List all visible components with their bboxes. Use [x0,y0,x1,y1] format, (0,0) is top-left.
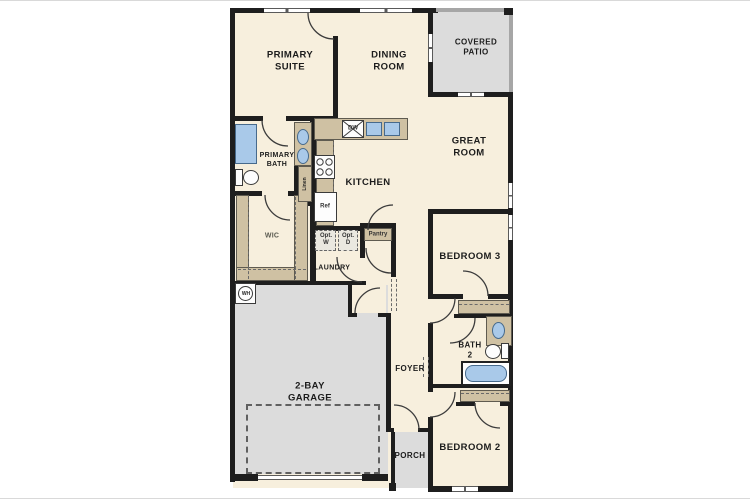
wall-garage-bottom-a [230,474,258,481]
stove-fixture [314,155,335,179]
wall-garage-right [386,313,391,432]
dishwasher-label: DW [348,126,358,133]
garage-parking-dash [246,404,380,474]
bedroom3-closet-dash [459,304,509,305]
window-bedroom3 [508,215,513,240]
garage-door [258,475,362,480]
garage-vestibule-floor [352,285,386,313]
foyer-opening-dash-1 [391,279,397,311]
patio-slider-door [428,34,433,62]
patio-corner-post [504,8,513,15]
patio-wall-right [509,8,513,97]
primary-bath-label: PRIMARY BATH [260,151,295,169]
laundry-label: LAUNDRY [314,263,351,272]
toilet-tank-bath2 [501,343,509,359]
wall-vestibule-left [348,285,352,313]
window-great-room [508,183,513,208]
kitchen-sink-1 [366,122,382,136]
opt-washer-label: Opt. W [320,233,332,247]
bedroom3-closet-shelf [458,300,510,314]
wall-bedroom2-bottom-b [478,486,513,492]
pantry-label: Pantry [369,232,388,239]
wall-dining-patio-a [428,8,433,34]
wall-left [230,8,235,482]
bedroom3-label: BEDROOM 3 [439,251,500,263]
patio-wall-top [436,8,513,12]
toilet-tank-primary [235,169,243,186]
great-room-label: GREAT ROOM [452,136,487,161]
wall-greatroom-bedroom3 [428,209,513,214]
porch-post [389,483,396,491]
wic-label: WIC [265,231,279,240]
patio-wall-bottom-a [428,92,458,97]
primary-suite-label: PRIMARY SUITE [267,50,313,75]
bedroom2-closet-dash [461,393,509,394]
wall-right-a [508,97,513,183]
kitchen-sink-2 [384,122,400,136]
water-heater-label: WH [242,291,250,298]
toilet-bowl-primary [243,170,259,185]
bedroom2-label: BEDROOM 2 [439,442,500,454]
window-primary-suite [264,8,310,13]
bath2-sink [492,322,505,339]
floor-plan: PRIMARY SUITE DINING ROOM COVERED PATIO … [0,0,750,500]
wic-shelf-dash-l [248,197,249,279]
shower-fixture [235,124,257,164]
garage-label: 2-BAY GARAGE [288,381,332,406]
page-top-rule [0,0,750,1]
dining-room-label: DINING ROOM [371,50,407,75]
kitchen-label: KITCHEN [345,177,390,189]
bathtub-fixture [465,365,507,382]
wall-hall-d [428,417,433,487]
wall-garage-bottom-b [362,474,388,481]
page-bottom-rule [0,498,750,499]
bedroom2-closet-shelf [460,390,510,402]
wall-primary-suite-bottom-a [230,116,263,121]
primary-sink-2 [297,148,309,164]
opt-dryer-label: Opt. D [342,233,354,247]
wall-bedroom2-closet-a [456,402,475,406]
primary-sink-1 [297,129,309,145]
wall-bedroom3-bottom-b [488,294,513,299]
wall-bedroom3-bottom-a [428,294,463,299]
foyer-label: FOYER [395,364,425,374]
great-room-slider [458,92,484,97]
porch-label: PORCH [395,451,426,461]
wall-hall-a [428,209,433,296]
wic-shelf-dash-r [295,197,296,279]
wall-primary-suite-right [333,36,338,120]
wall-bedroom2-bottom-a [428,486,452,492]
toilet-bowl-bath2 [485,344,501,359]
bath2-label: BATH 2 [458,341,481,362]
refrigerator-label: Ref [320,204,330,211]
window-bedroom2 [452,486,478,492]
covered-patio-label: COVERED PATIO [455,38,497,59]
wall-vestibule-bottom-a [348,313,357,317]
linen-label: Linen [302,177,309,190]
wall-bedroom2-closet-b [500,402,513,406]
window-dining [360,8,412,13]
